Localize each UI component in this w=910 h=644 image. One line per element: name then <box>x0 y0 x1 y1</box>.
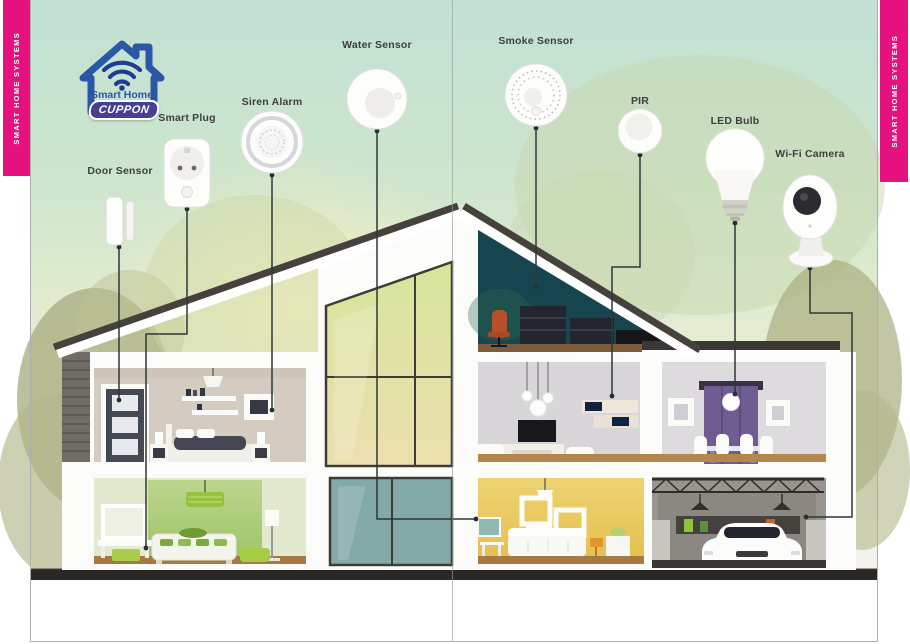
living-room <box>476 362 642 469</box>
green-bedroom <box>94 478 306 564</box>
yellow-living-room <box>478 478 646 564</box>
door-sensor-figure <box>106 197 134 245</box>
led-bulb-label: LED Bulb <box>695 115 775 127</box>
smoke-sensor-label: Smoke Sensor <box>498 35 574 47</box>
siren-alarm-figure <box>241 111 303 173</box>
right-side-banner: SMART HOME SYSTEMS <box>880 0 908 182</box>
ottoman <box>240 548 270 562</box>
stone-column <box>62 352 90 464</box>
garage <box>648 478 826 568</box>
master-bedroom <box>94 368 306 463</box>
wifi-camera-label: Wi-Fi Camera <box>772 148 848 160</box>
interior-column <box>640 362 662 462</box>
siren-alarm-label: Siren Alarm <box>227 96 317 108</box>
smart-plug-figure <box>164 139 210 207</box>
garage-cabinet <box>806 520 826 562</box>
wood-floor <box>478 556 646 564</box>
left-banner-label: SMART HOME SYSTEMS <box>12 32 21 145</box>
smoke-sensor-figure <box>505 64 567 126</box>
atrium-glass-door <box>330 478 452 565</box>
sofa <box>508 528 586 556</box>
left-floor-slab <box>62 462 318 478</box>
tv-screen <box>518 420 556 442</box>
garage-floor <box>648 560 826 568</box>
left-side-banner: SMART HOME SYSTEMS <box>3 0 30 176</box>
smart-plug-label: Smart Plug <box>149 112 225 124</box>
dining-room <box>662 362 826 464</box>
water-sensor-label: Water Sensor <box>339 39 415 51</box>
ball-pendant <box>723 394 740 411</box>
garage-cabinet <box>650 520 670 562</box>
water-sensor-figure <box>347 69 407 129</box>
attic-bookshelf <box>520 306 566 344</box>
middle-floor-wood <box>478 454 826 462</box>
bedroom-door <box>101 384 149 463</box>
pir-label: PIR <box>602 95 678 107</box>
door-sensor-label: Door Sensor <box>82 165 158 177</box>
pir-sensor-figure <box>618 109 662 153</box>
right-banner-label: SMART HOME SYSTEMS <box>890 35 899 148</box>
smart-home-infographic: SMART HOME SYSTEMS SMART HOME SYSTEMS Sm… <box>0 0 910 644</box>
right-floor-slab <box>470 462 856 478</box>
ground-foundation <box>31 569 877 580</box>
